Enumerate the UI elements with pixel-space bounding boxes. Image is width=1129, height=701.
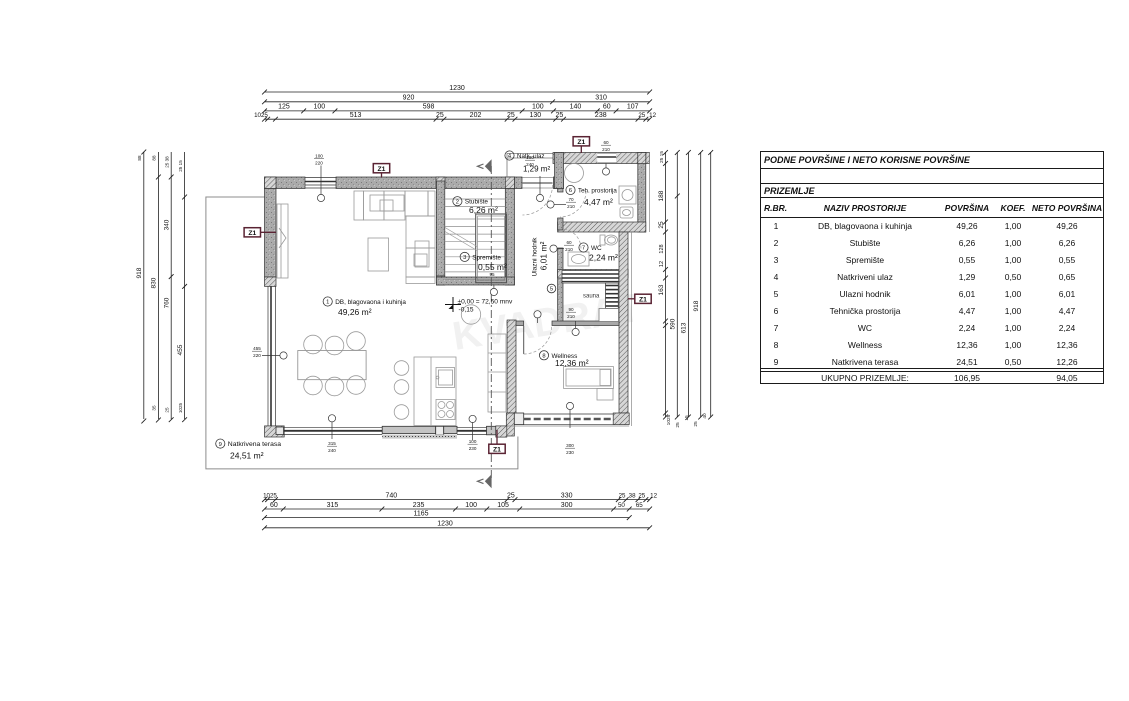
svg-text:163: 163: [658, 284, 665, 295]
svg-text:188: 188: [658, 190, 665, 201]
svg-text:50: 50: [618, 502, 625, 509]
svg-text:107: 107: [627, 104, 639, 111]
svg-text:25: 25: [436, 112, 444, 119]
svg-text:455: 455: [177, 344, 184, 355]
svg-text:1: 1: [326, 300, 329, 306]
svg-text:613: 613: [681, 322, 688, 333]
svg-text:DB, blagovaona i kuhinja: DB, blagovaona i kuhinja: [335, 299, 406, 306]
svg-text:12: 12: [649, 112, 656, 119]
svg-text:140: 140: [570, 104, 582, 111]
svg-text:12,36 m²: 12,36 m²: [555, 358, 589, 368]
svg-text:918: 918: [136, 267, 143, 278]
svg-text:49,26 m²: 49,26 m²: [338, 307, 372, 317]
svg-text:202: 202: [470, 112, 482, 119]
svg-text:590: 590: [670, 318, 677, 329]
svg-text:Z1: Z1: [639, 297, 647, 304]
svg-text:128: 128: [659, 244, 665, 253]
svg-text:340: 340: [163, 219, 170, 230]
svg-text:Z1: Z1: [577, 139, 585, 146]
svg-text:3: 3: [463, 255, 466, 261]
svg-text:12: 12: [659, 261, 665, 267]
svg-text:760: 760: [163, 297, 170, 308]
svg-text:4,47 m²: 4,47 m²: [584, 197, 613, 207]
svg-text:300: 300: [566, 443, 574, 448]
svg-text:35: 35: [152, 405, 157, 411]
svg-text:220: 220: [253, 353, 261, 358]
svg-text:WC: WC: [591, 245, 602, 252]
svg-text:240: 240: [526, 162, 534, 167]
svg-text:1230: 1230: [437, 521, 453, 528]
svg-text:100: 100: [532, 104, 544, 111]
svg-text:2: 2: [456, 199, 459, 205]
svg-text:Z1: Z1: [493, 447, 501, 454]
svg-text:100: 100: [313, 104, 325, 111]
svg-text:920: 920: [403, 95, 415, 102]
svg-text:25 15: 25 15: [659, 151, 665, 163]
svg-text:38: 38: [629, 492, 636, 499]
svg-text:15: 15: [684, 415, 690, 421]
svg-text:25: 25: [164, 407, 169, 413]
svg-text:310: 310: [595, 95, 607, 102]
svg-text:25: 25: [638, 112, 645, 119]
svg-text:24,51 m²: 24,51 m²: [230, 451, 264, 461]
svg-text:740: 740: [385, 492, 397, 499]
svg-text:455: 455: [253, 346, 261, 351]
svg-text:40: 40: [702, 413, 708, 419]
svg-text:330: 330: [561, 492, 573, 499]
svg-text:230: 230: [469, 446, 477, 451]
svg-text:60: 60: [270, 502, 278, 509]
svg-text:25 38: 25 38: [164, 156, 169, 168]
svg-text:9: 9: [219, 442, 222, 448]
svg-text:240: 240: [328, 448, 336, 453]
svg-text:25: 25: [675, 422, 681, 428]
svg-text:100: 100: [469, 439, 477, 444]
svg-text:125: 125: [278, 104, 290, 111]
svg-text:2,24 m²: 2,24 m²: [589, 253, 618, 263]
svg-text:25: 25: [658, 221, 665, 229]
svg-text:-0,15: -0,15: [459, 307, 474, 314]
svg-text:5: 5: [550, 287, 553, 293]
svg-text:100: 100: [526, 155, 534, 160]
svg-text:300: 300: [561, 502, 573, 509]
svg-text:25: 25: [556, 112, 564, 119]
svg-text:210: 210: [567, 204, 575, 209]
svg-text:sauna: sauna: [583, 294, 600, 300]
svg-text:25 15: 25 15: [178, 160, 183, 172]
svg-text:1025: 1025: [666, 414, 672, 425]
svg-text:6,26 m²: 6,26 m²: [469, 205, 498, 215]
svg-text:Z1: Z1: [378, 166, 386, 173]
svg-text:210: 210: [565, 247, 573, 252]
svg-text:Z1: Z1: [248, 230, 256, 237]
svg-text:918: 918: [693, 300, 700, 311]
svg-text:Spremište: Spremište: [472, 254, 501, 261]
svg-text:100: 100: [315, 154, 323, 159]
svg-text:1025: 1025: [254, 112, 268, 119]
svg-text:60: 60: [603, 104, 611, 111]
svg-text:220: 220: [315, 161, 323, 166]
svg-text:7: 7: [582, 246, 585, 252]
svg-text:Natkrivena terasa: Natkrivena terasa: [228, 441, 281, 448]
svg-text:210: 210: [567, 314, 575, 319]
svg-text:25: 25: [507, 112, 515, 119]
svg-text:1025: 1025: [178, 402, 183, 413]
svg-text:65: 65: [636, 502, 643, 509]
svg-text:60: 60: [603, 140, 609, 145]
svg-text:513: 513: [350, 112, 362, 119]
svg-text:6: 6: [569, 188, 572, 194]
svg-text:238: 238: [595, 112, 607, 119]
svg-text:1165: 1165: [413, 510, 428, 517]
svg-text:88: 88: [137, 155, 142, 161]
svg-text:95: 95: [489, 272, 495, 277]
svg-text:100: 100: [465, 502, 477, 509]
svg-text:4: 4: [508, 154, 512, 160]
svg-text:Teh. prostorija: Teh. prostorija: [578, 188, 617, 195]
svg-text:25: 25: [507, 492, 515, 499]
svg-text:1230: 1230: [449, 85, 465, 92]
svg-text:60: 60: [566, 240, 572, 245]
svg-text:210: 210: [602, 147, 610, 152]
svg-text:235: 235: [413, 502, 425, 509]
svg-text:598: 598: [423, 104, 435, 111]
svg-text:25: 25: [638, 492, 645, 499]
svg-text:70: 70: [568, 197, 574, 202]
svg-text:25: 25: [693, 421, 699, 427]
svg-text:±0,00 = 72,50 mnv: ±0,00 = 72,50 mnv: [458, 299, 513, 306]
svg-text:230: 230: [566, 450, 574, 455]
svg-text:315: 315: [328, 441, 336, 446]
svg-text:315: 315: [327, 502, 339, 509]
svg-text:8: 8: [542, 354, 545, 360]
svg-text:1025: 1025: [263, 492, 277, 499]
svg-text:90: 90: [568, 307, 574, 312]
svg-text:25: 25: [619, 492, 626, 499]
svg-text:130: 130: [529, 112, 541, 119]
svg-text:105: 105: [497, 502, 509, 509]
svg-text:0,55 m²: 0,55 m²: [478, 262, 507, 272]
svg-text:Ulazni hodnik: Ulazni hodnik: [532, 237, 539, 277]
svg-text:6,01 m²: 6,01 m²: [539, 241, 549, 270]
svg-text:88: 88: [152, 155, 157, 161]
svg-text:12: 12: [650, 492, 657, 499]
svg-text:830: 830: [151, 277, 158, 288]
